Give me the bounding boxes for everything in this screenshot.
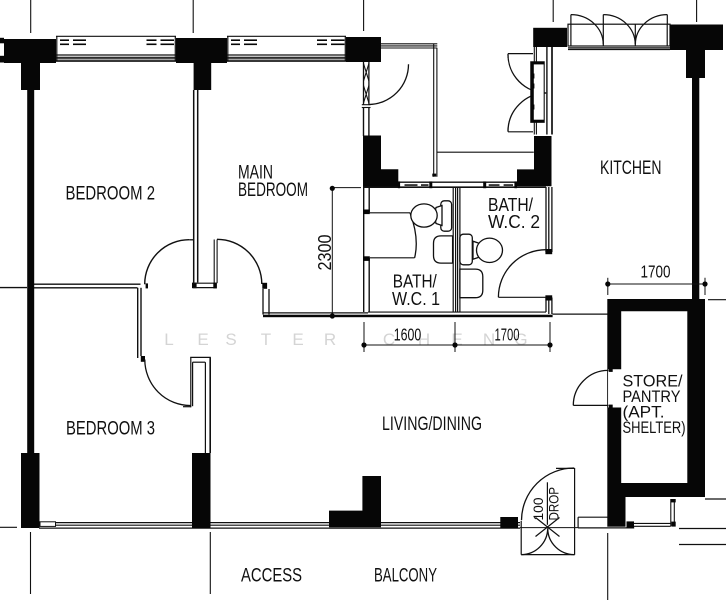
- svg-text:R: R: [324, 330, 336, 349]
- svg-text:E: E: [197, 330, 208, 349]
- svg-text:T: T: [261, 330, 271, 349]
- svg-text:BEDROOM 2: BEDROOM 2: [66, 184, 156, 205]
- svg-text:S: S: [225, 330, 236, 349]
- svg-text:N: N: [483, 330, 495, 349]
- svg-text:E: E: [292, 330, 303, 349]
- svg-text:1700: 1700: [641, 262, 671, 282]
- svg-text:BEDROOM 3: BEDROOM 3: [66, 418, 155, 439]
- svg-text:W.C. 1: W.C. 1: [392, 289, 440, 309]
- svg-text:L: L: [164, 330, 173, 349]
- svg-text:LIVING/DINING: LIVING/DINING: [382, 414, 482, 435]
- svg-text:SHELTER): SHELTER): [623, 418, 686, 437]
- svg-text:ACCESS: ACCESS: [241, 565, 302, 587]
- svg-text:1600: 1600: [394, 325, 422, 345]
- svg-text:100: 100: [530, 497, 546, 520]
- svg-text:BEDROOM: BEDROOM: [238, 180, 308, 201]
- svg-text:2300: 2300: [315, 235, 335, 271]
- svg-text:W.C. 2: W.C. 2: [488, 212, 540, 232]
- svg-text:KITCHEN: KITCHEN: [600, 158, 662, 179]
- svg-text:DROP: DROP: [546, 487, 562, 521]
- svg-text:1700: 1700: [495, 325, 520, 345]
- svg-text:BALCONY: BALCONY: [374, 565, 437, 587]
